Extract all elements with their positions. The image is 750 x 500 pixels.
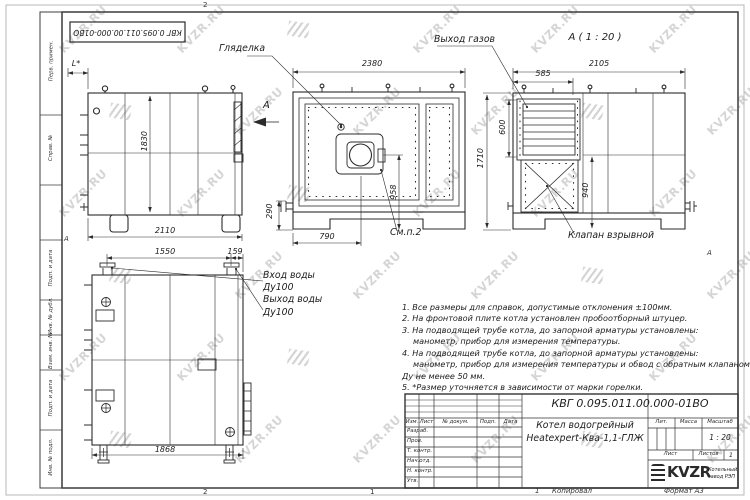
tb-row-tkontr: Т. контр. <box>407 449 432 455</box>
label-water-inlet: Вход воды <box>263 271 315 281</box>
tb-row-nkontr: Н. контр. <box>407 469 433 475</box>
tb-scale-value: 1 : 20 <box>702 434 738 442</box>
view-a-title: А ( 1 : 20 ) <box>560 33 630 44</box>
tb-col-doc: № докум. <box>434 420 477 426</box>
zone-bottom-a: 2 <box>203 489 207 496</box>
dim-2110: 2110 <box>141 227 189 235</box>
note-line: 3. На подводящей трубе котла, до запорно… <box>402 325 750 336</box>
stamp-inv-dubl: Инв. № дубл. <box>48 298 54 334</box>
note-line: манометр, прибор для измерения температу… <box>402 336 750 347</box>
dim-l-star: L* <box>66 60 86 68</box>
kvzr-coil-icon <box>651 464 665 484</box>
stamp-podp-data-2: Подп. и дата <box>48 368 54 428</box>
copied-label: Копировал <box>552 488 592 495</box>
tb-sheets-value: 1 <box>724 452 738 459</box>
tb-lit-label: Лит. <box>648 420 675 426</box>
stamp-perv-primen: Перв. примен. <box>49 10 55 113</box>
company-name-line2: завод РЭП <box>708 474 735 480</box>
view-arrow-label: А <box>263 101 270 112</box>
dim-1550: 1550 <box>141 248 189 256</box>
zone-bottom-b: 1 <box>370 489 374 496</box>
notes-block: 1. Все размеры для справок, допустимые о… <box>402 302 750 394</box>
view-front <box>247 56 465 246</box>
stamp-podp-data-1: Подп. и дата <box>48 238 54 298</box>
dim-940: 940 <box>582 168 590 212</box>
callout-explosion-valve: Клапан взрывной <box>568 231 654 241</box>
view-side-right <box>84 254 263 463</box>
format-label: Формат А3 <box>664 488 704 495</box>
tb-sheet-label: Лист <box>648 452 693 458</box>
stamp-inv-podl: Инв. № подл. <box>48 428 54 486</box>
company-name-line1: Котельный <box>708 467 737 473</box>
note-line: 1. Все размеры для справок, допустимые о… <box>402 302 750 313</box>
note-line: 5. *Размер уточняется в зависимости от м… <box>402 382 750 393</box>
dim-585: 585 <box>526 70 560 78</box>
tb-product-line2: Heatexpert-Ква-1,1-ГЛЖ <box>522 434 648 444</box>
dim-958: 958 <box>390 170 398 214</box>
label-water-outlet-dn: Ду100 <box>263 308 294 318</box>
dim-1710: 1710 <box>477 136 485 180</box>
zone-letter-left: А <box>64 236 69 243</box>
tb-col-data: Дата <box>499 420 522 426</box>
dim-2105: 2105 <box>575 60 623 68</box>
view-side-left <box>68 68 243 241</box>
tb-col-podp: Подп. <box>477 420 499 426</box>
label-water-inlet-dn: Ду100 <box>263 283 294 293</box>
note-line: Ду не менее 50 мм. <box>402 371 750 382</box>
drawing-sheet: KVZR.RUKVZR.RUKVZR.RUKVZR.RUKVZR.RUKVZR.… <box>0 0 750 500</box>
tb-row-nachotd: Нач.отд. <box>407 459 431 465</box>
tb-row-utv: Утв. <box>407 479 418 485</box>
tb-col-list: Лист <box>419 420 434 426</box>
tb-sheets-label: Листов <box>693 452 724 458</box>
dim-1830: 1830 <box>141 119 149 163</box>
dim-790: 790 <box>310 233 344 241</box>
callout-sight-glass: Гляделка <box>219 44 265 54</box>
note-line: 2. На фронтовой плите котла установлен п… <box>402 313 750 324</box>
label-water-outlet: Выход воды <box>263 295 322 305</box>
zone-top: 2 <box>203 2 207 9</box>
tb-product-line1: Котел водогрейный <box>522 421 648 431</box>
stamp-vzam-inv: Взам. инв. № <box>48 333 54 369</box>
tb-doc-number: КВГ 0.095.011.00.000-01ВО <box>522 398 738 410</box>
tb-col-izm: Изм. <box>405 420 419 426</box>
tb-row-razrab: Разраб. <box>407 429 428 435</box>
note-line: 4. На подводящей трубе котла, до запорно… <box>402 348 750 359</box>
callout-see-item: См.п.2 <box>390 228 421 238</box>
dim-2380: 2380 <box>348 60 396 68</box>
kvzr-logo-text: KVZR <box>667 465 711 481</box>
note-line: манометр, прибор для измерения температу… <box>402 359 750 370</box>
zone-bottom-c: 1 <box>535 488 539 495</box>
dim-290: 290 <box>266 191 274 231</box>
tb-mass-label: Масса <box>675 420 702 426</box>
tb-row-prov: Пров. <box>407 439 423 445</box>
callout-gas-outlet: Выход газов <box>434 35 495 45</box>
doc-number-inverted: КВГ 0.095.011.00.000-01ВО <box>70 22 185 42</box>
tb-scale-label: Масштаб <box>702 420 738 426</box>
zone-letter-right: А <box>707 250 712 257</box>
dim-1868: 1868 <box>141 446 189 454</box>
stamp-sprav-no: Справ. № <box>48 113 54 183</box>
dim-600: 600 <box>499 105 507 149</box>
dim-159: 159 <box>221 248 249 256</box>
company-logo: KVZR Котельный завод РЭП <box>651 463 736 486</box>
